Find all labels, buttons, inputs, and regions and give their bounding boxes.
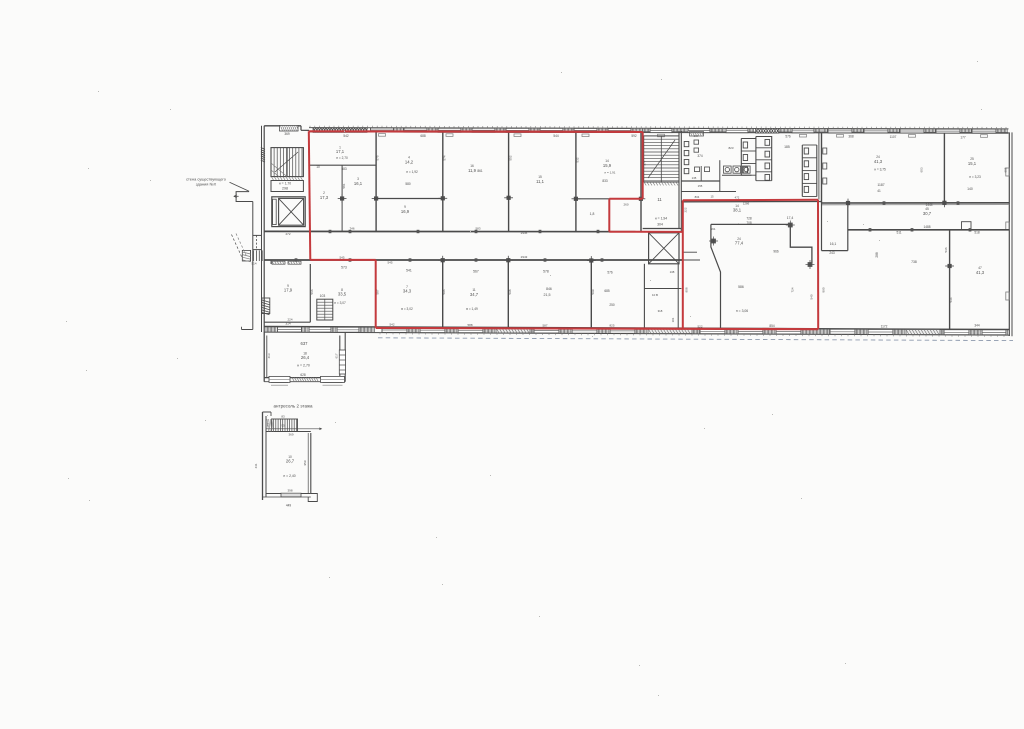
svg-text:587: 587	[542, 323, 547, 327]
svg-text:583: 583	[341, 167, 347, 171]
svg-text:243: 243	[829, 251, 835, 255]
svg-text:15,1: 15,1	[968, 161, 977, 166]
svg-text:398: 398	[287, 489, 292, 493]
svg-text:369: 369	[288, 433, 293, 437]
svg-text:2945: 2945	[521, 231, 528, 235]
svg-text:628: 628	[300, 373, 306, 377]
svg-text:374: 374	[697, 154, 703, 158]
svg-text:1488: 1488	[923, 225, 930, 229]
svg-text:592: 592	[631, 134, 637, 138]
svg-text:596: 596	[442, 289, 446, 294]
svg-text:318: 318	[658, 309, 663, 313]
svg-text:545: 545	[339, 255, 344, 259]
svg-text:637: 637	[301, 341, 309, 346]
svg-text:н = 3,75: н = 3,75	[874, 168, 886, 172]
svg-text:10 В: 10 В	[652, 293, 658, 297]
svg-text:н = 2,70: н = 2,70	[336, 156, 348, 160]
svg-text:здания №Х: здания №Х	[196, 182, 217, 187]
svg-text:н = 2,70: н = 2,70	[297, 364, 310, 368]
svg-text:586: 586	[738, 285, 744, 289]
svg-text:598: 598	[508, 289, 512, 294]
svg-text:41,3: 41,3	[874, 159, 883, 164]
svg-text:581: 581	[342, 183, 346, 188]
svg-text:95: 95	[281, 424, 285, 428]
svg-text:185: 185	[784, 145, 790, 149]
svg-text:304: 304	[657, 223, 663, 227]
svg-text:1286: 1286	[743, 202, 750, 206]
svg-text:33,5: 33,5	[338, 292, 347, 297]
svg-text:34,3: 34,3	[403, 289, 412, 294]
svg-text:26,4: 26,4	[301, 355, 310, 360]
svg-text:н = 2,40: н = 2,40	[283, 474, 295, 478]
svg-text:288: 288	[875, 252, 879, 258]
svg-text:17,1: 17,1	[336, 149, 345, 154]
svg-text:1172: 1172	[881, 325, 888, 329]
svg-text:544: 544	[553, 134, 559, 138]
svg-text:17,4: 17,4	[787, 216, 794, 220]
svg-text:344: 344	[974, 324, 980, 328]
svg-text:825: 825	[609, 324, 614, 328]
svg-text:511: 511	[896, 231, 901, 235]
svg-text:449: 449	[286, 504, 292, 508]
svg-text:16,9: 16,9	[401, 209, 410, 214]
svg-text:566: 566	[310, 289, 314, 294]
svg-text:38,1: 38,1	[733, 208, 742, 213]
svg-text:369: 369	[284, 132, 290, 136]
svg-text:591: 591	[710, 227, 715, 231]
svg-text:1444: 1444	[925, 203, 932, 207]
svg-text:в = 1,49: в = 1,49	[466, 307, 478, 311]
svg-text:15: 15	[710, 195, 714, 199]
svg-text:272: 272	[285, 232, 290, 236]
svg-text:567: 567	[473, 270, 479, 274]
svg-text:н = 3,07: н = 3,07	[334, 301, 346, 305]
svg-text:861: 861	[477, 169, 483, 173]
svg-text:11: 11	[657, 197, 662, 202]
svg-text:30,7: 30,7	[923, 211, 932, 216]
svg-text:34,7: 34,7	[470, 292, 479, 297]
svg-text:576: 576	[607, 271, 613, 275]
svg-text:16,1: 16,1	[830, 242, 837, 246]
svg-text:738: 738	[911, 260, 917, 264]
svg-text:15,9: 15,9	[603, 163, 612, 168]
svg-text:966: 966	[773, 250, 779, 254]
svg-text:1107: 1107	[890, 135, 897, 139]
svg-text:83: 83	[281, 415, 285, 419]
svg-text:2943: 2943	[521, 255, 528, 259]
svg-text:177: 177	[960, 135, 966, 139]
svg-text:н = 1,94: н = 1,94	[655, 217, 667, 221]
svg-text:522: 522	[697, 324, 702, 328]
svg-text:575: 575	[376, 155, 380, 160]
svg-text:24: 24	[266, 423, 270, 427]
svg-text:542: 542	[343, 134, 349, 138]
svg-text:21,5: 21,5	[544, 293, 551, 297]
svg-text:514: 514	[251, 262, 256, 266]
svg-text:576: 576	[785, 134, 791, 138]
svg-text:250: 250	[609, 303, 615, 307]
svg-text:н = 1,92: н = 1,92	[406, 170, 418, 174]
svg-text:135: 135	[692, 176, 697, 180]
svg-text:41,3: 41,3	[976, 270, 985, 275]
svg-text:846: 846	[546, 287, 552, 291]
svg-text:605: 605	[1004, 167, 1008, 172]
svg-text:728: 728	[746, 217, 752, 221]
svg-text:518: 518	[974, 231, 980, 235]
svg-text:472: 472	[735, 196, 740, 200]
svg-text:552: 552	[509, 155, 513, 160]
svg-text:314: 314	[285, 322, 291, 326]
svg-text:685: 685	[604, 289, 610, 293]
svg-text:1,8: 1,8	[590, 212, 595, 216]
svg-text:536: 536	[944, 247, 948, 252]
svg-text:532: 532	[576, 157, 580, 162]
svg-text:11,9: 11,9	[468, 168, 477, 173]
svg-text:580: 580	[405, 182, 411, 186]
svg-text:746: 746	[349, 227, 354, 231]
svg-text:688: 688	[420, 134, 426, 138]
svg-text:260: 260	[623, 203, 628, 207]
svg-text:890: 890	[822, 287, 826, 292]
svg-text:17,3: 17,3	[320, 195, 329, 200]
svg-text:77,4: 77,4	[735, 241, 744, 246]
svg-text:26,7: 26,7	[286, 459, 295, 464]
svg-text:368: 368	[848, 135, 854, 139]
svg-text:545: 545	[387, 261, 392, 265]
svg-text:155: 155	[698, 184, 703, 188]
svg-text:541: 541	[406, 269, 412, 273]
svg-text:н = 3,06: н = 3,06	[736, 309, 748, 313]
svg-text:413: 413	[267, 353, 271, 358]
svg-text:959: 959	[303, 460, 307, 465]
svg-text:578: 578	[543, 270, 549, 274]
svg-text:587: 587	[376, 289, 380, 294]
svg-text:11,1: 11,1	[536, 179, 545, 184]
svg-text:823: 823	[728, 146, 733, 150]
svg-text:антресоль 2 этажа: антресоль 2 этажа	[274, 404, 313, 409]
svg-text:617: 617	[335, 353, 339, 358]
svg-text:103: 103	[320, 294, 326, 298]
svg-text:441: 441	[254, 463, 258, 468]
svg-text:708: 708	[746, 221, 752, 225]
svg-text:540: 540	[810, 294, 814, 299]
svg-text:140: 140	[967, 187, 973, 191]
svg-text:н = 3,23: н = 3,23	[969, 175, 981, 179]
svg-text:833: 833	[602, 179, 608, 183]
svg-text:534: 534	[949, 297, 953, 302]
svg-text:222: 222	[684, 207, 688, 212]
svg-text:298: 298	[282, 187, 288, 191]
svg-text:577: 577	[643, 160, 647, 165]
svg-text:14,2: 14,2	[405, 160, 414, 165]
svg-text:н = 1,70: н = 1,70	[279, 182, 291, 186]
svg-text:542: 542	[389, 323, 394, 327]
svg-text:599: 599	[591, 289, 595, 294]
svg-text:573: 573	[341, 266, 347, 270]
svg-text:10: 10	[316, 165, 320, 169]
svg-text:н = 1,91: н = 1,91	[605, 171, 616, 175]
svg-text:в = 3,02: в = 3,02	[401, 307, 413, 311]
svg-text:16,1: 16,1	[354, 181, 363, 186]
svg-text:804: 804	[695, 195, 700, 199]
svg-text:583: 583	[475, 227, 480, 231]
svg-text:1187: 1187	[877, 183, 884, 187]
svg-text:101: 101	[671, 317, 675, 322]
svg-text:138: 138	[670, 270, 675, 274]
svg-text:724: 724	[791, 287, 795, 292]
svg-text:224: 224	[287, 318, 292, 322]
svg-text:41: 41	[877, 189, 881, 193]
svg-text:574: 574	[443, 155, 447, 160]
svg-text:603: 603	[920, 167, 924, 172]
svg-text:908: 908	[685, 287, 689, 292]
svg-text:854: 854	[769, 324, 775, 328]
svg-text:588: 588	[467, 323, 472, 327]
svg-text:17,9: 17,9	[284, 288, 293, 293]
